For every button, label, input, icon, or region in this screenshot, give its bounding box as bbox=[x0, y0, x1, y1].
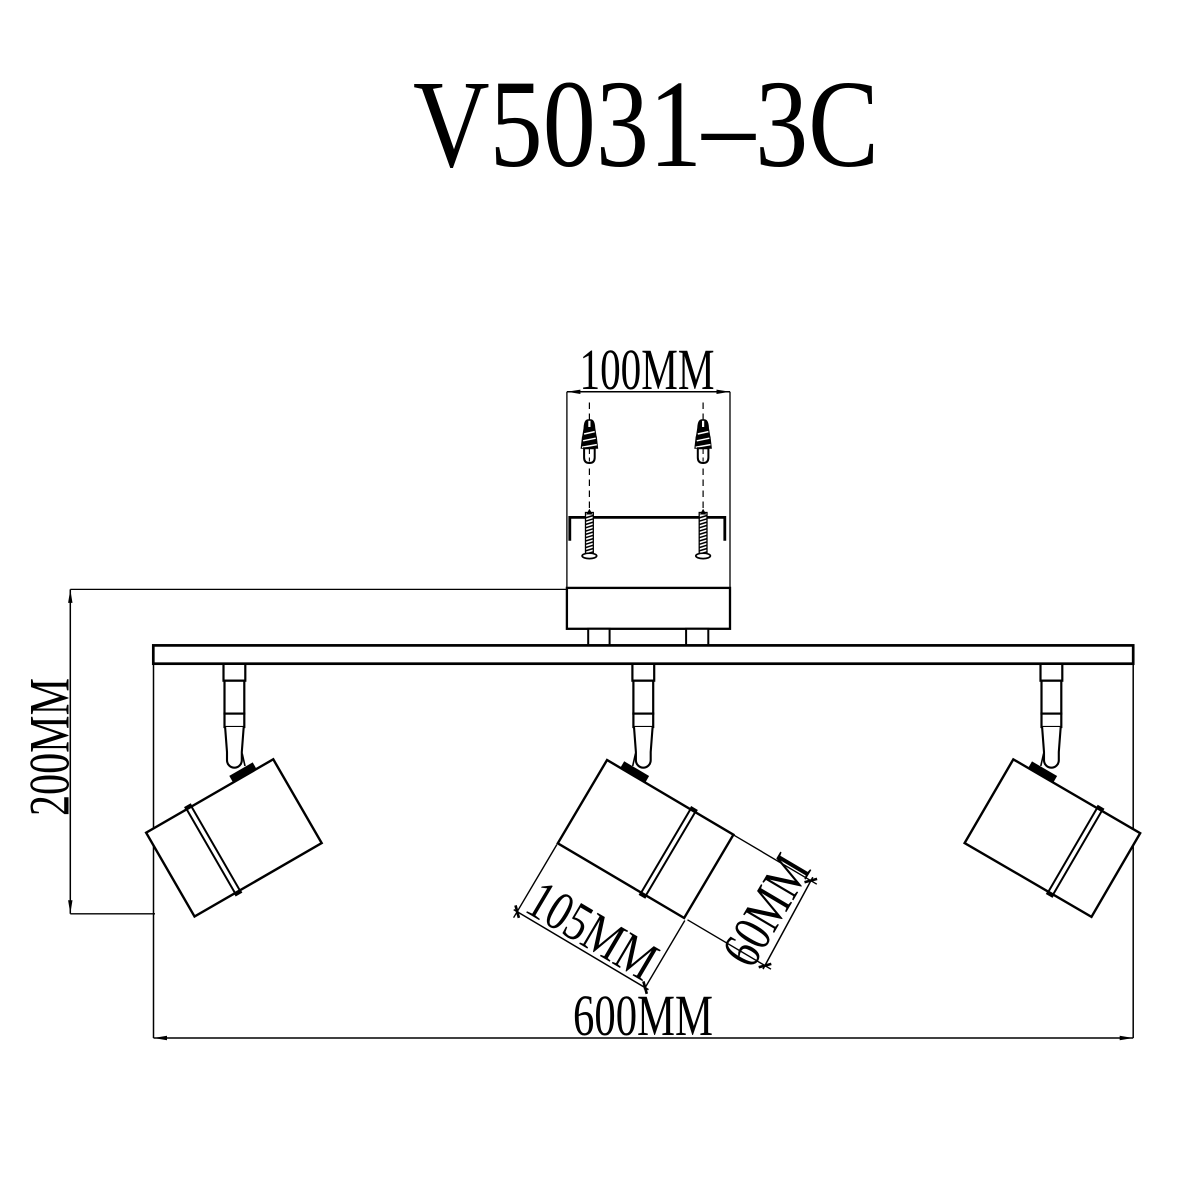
svg-text:V5031–3C: V5031–3C bbox=[413, 56, 879, 194]
svg-text:600MM: 600MM bbox=[573, 983, 713, 1048]
svg-text:200MM: 200MM bbox=[19, 678, 82, 816]
svg-text:100MM: 100MM bbox=[580, 337, 715, 402]
